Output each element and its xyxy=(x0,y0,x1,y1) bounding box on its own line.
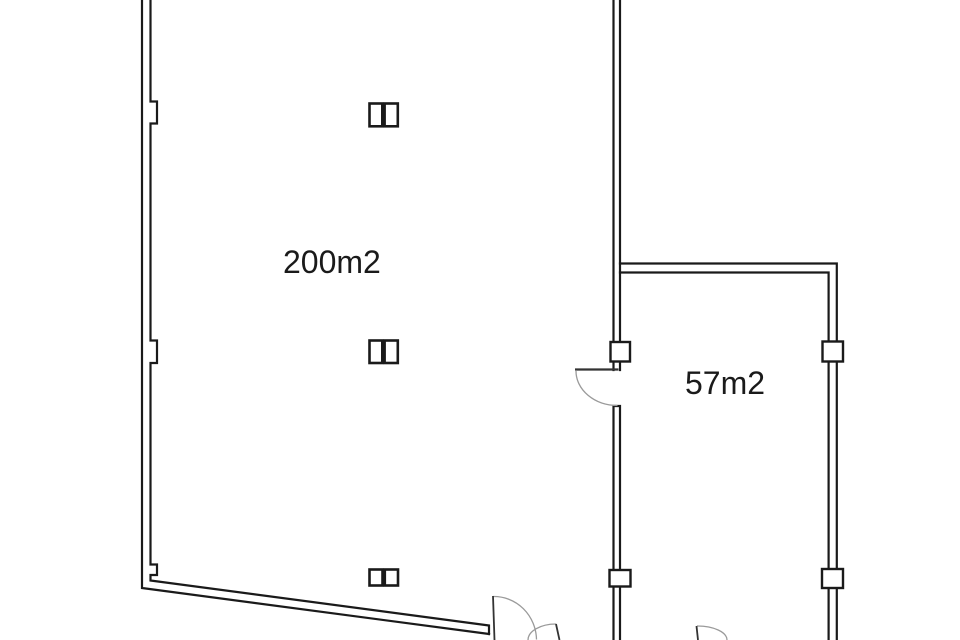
door-leaf-icon xyxy=(697,626,699,640)
floorplan-drawing: 200m2 57m2 xyxy=(0,0,960,640)
pillar-marker-icon xyxy=(370,570,383,586)
middle-wall-lower xyxy=(614,406,621,640)
column-marker-icon xyxy=(823,342,844,362)
column-marker-icon xyxy=(610,570,631,587)
walls xyxy=(142,0,837,640)
room-labels: 200m2 57m2 xyxy=(283,244,765,401)
pillar-marker-icon xyxy=(385,570,398,586)
door-small-room xyxy=(697,626,728,640)
column-marker-icon xyxy=(822,569,843,588)
column-marker-icon xyxy=(611,342,631,362)
door-divider xyxy=(575,370,619,406)
pillar-pair-markers xyxy=(370,104,399,586)
left-bottom-wall-inner xyxy=(151,0,490,634)
doors xyxy=(493,370,727,640)
door-leaf-icon xyxy=(556,624,560,640)
pillar-marker-icon xyxy=(385,104,398,127)
left-bottom-wall-outer xyxy=(142,0,489,634)
room2-wall-inner xyxy=(620,273,829,640)
pillar-marker-icon xyxy=(370,341,383,364)
pillar-marker-icon xyxy=(370,104,383,127)
room-area-label-side: 57m2 xyxy=(685,365,765,401)
door-entrance-right-leaf xyxy=(528,624,560,640)
door-swing-arc-icon xyxy=(697,626,727,640)
room-area-label-main: 200m2 xyxy=(283,244,381,280)
room2-wall-outer xyxy=(620,264,837,640)
pillar-marker-icon xyxy=(385,341,398,364)
door-swing-arc-icon xyxy=(576,371,618,406)
middle-wall-upper xyxy=(614,0,621,370)
door-leaf-icon xyxy=(493,596,495,640)
door-swing-arc-icon xyxy=(528,624,556,640)
floorplan-canvas: 200m2 57m2 xyxy=(0,0,960,640)
